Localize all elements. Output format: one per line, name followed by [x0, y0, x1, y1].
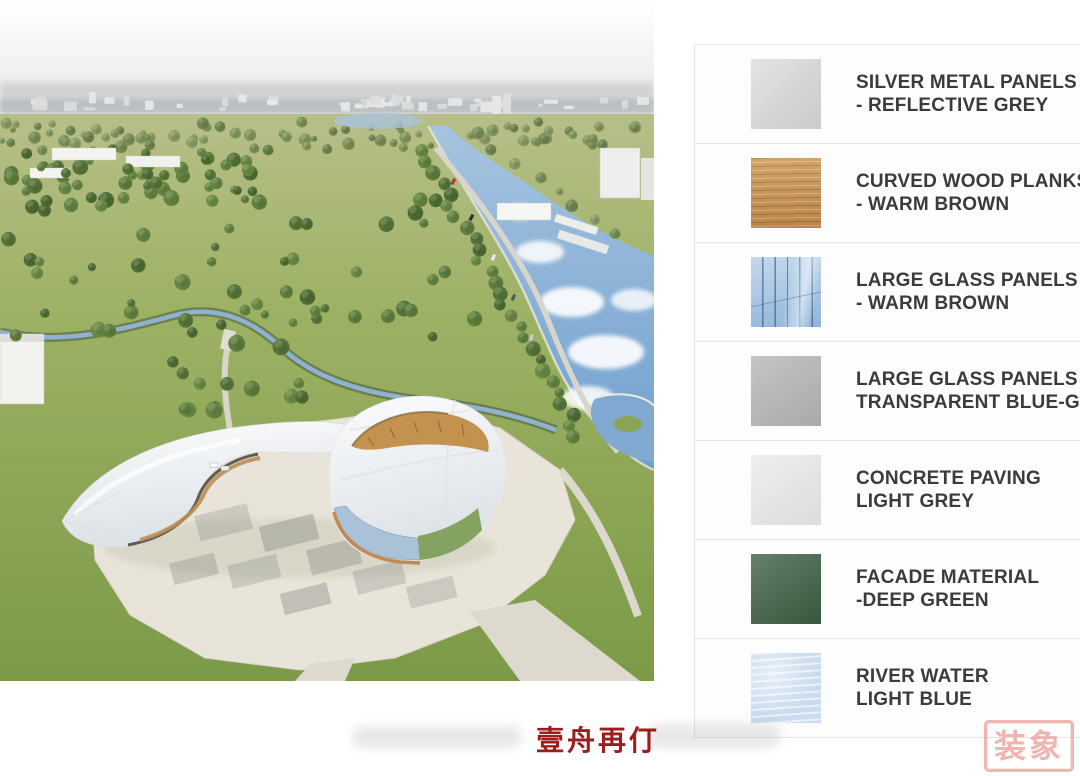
seal-watermark: 装象 — [984, 720, 1074, 772]
legend-label-line1: FACADE MATERIAL — [856, 566, 1039, 589]
sky — [0, 0, 654, 115]
legend-item-curved-wood-planks: CURVED WOOD PLANKS - WARM BROWN — [695, 144, 1080, 243]
legend-item-large-glass-panels-grey: LARGE GLASS PANELS - TRANSPARENT BLUE-GR… — [695, 342, 1080, 441]
blurred-watermark — [648, 724, 780, 748]
legend-label-line2: TRANSPARENT BLUE-GREY — [856, 391, 1080, 414]
swatch-concrete — [751, 455, 821, 525]
legend-label-line1: RIVER WATER — [856, 665, 989, 688]
legend-label: SILVER METAL PANELS - REFLECTIVE GREY — [856, 71, 1077, 117]
legend-label: FACADE MATERIAL -DEEP GREEN — [856, 566, 1039, 612]
legend-label-line1: CONCRETE PAVING — [856, 467, 1041, 490]
legend-label-line2: - WARM BROWN — [856, 193, 1080, 216]
swatch-deep-green — [751, 554, 821, 624]
swatch-glass-grey — [751, 356, 821, 426]
legend-label: RIVER WATER LIGHT BLUE — [856, 665, 989, 711]
legend-label-line2: -DEEP GREEN — [856, 589, 1039, 612]
legend-label-line2: LIGHT BLUE — [856, 688, 989, 711]
legend-label-line2: LIGHT GREY — [856, 490, 1041, 513]
rendering-image — [0, 0, 654, 681]
presentation-slide: SILVER METAL PANELS - REFLECTIVE GREY CU… — [0, 0, 1080, 776]
legend-label-line2: - REFLECTIVE GREY — [856, 94, 1077, 117]
legend-label: LARGE GLASS PANELS - WARM BROWN — [856, 269, 1078, 315]
legend-label-line2: - WARM BROWN — [856, 292, 1078, 315]
legend-label-line1: CURVED WOOD PLANKS — [856, 170, 1080, 193]
legend-label-line1: LARGE GLASS PANELS — [856, 269, 1078, 292]
legend-item-silver-metal-panels: SILVER METAL PANELS - REFLECTIVE GREY — [695, 45, 1080, 144]
swatch-glass-blue — [751, 257, 821, 327]
swatch-wood — [751, 158, 821, 228]
legend-label-line1: SILVER METAL PANELS — [856, 71, 1077, 94]
seal-characters: 装象 — [994, 730, 1064, 762]
distant-pond — [334, 113, 422, 129]
blurred-watermark — [352, 726, 522, 748]
material-legend: SILVER METAL PANELS - REFLECTIVE GREY CU… — [694, 44, 1080, 738]
legend-label: LARGE GLASS PANELS - TRANSPARENT BLUE-GR… — [856, 368, 1080, 414]
legend-item-facade-material-green: FACADE MATERIAL -DEEP GREEN — [695, 540, 1080, 639]
swatch-silver-metal — [751, 59, 821, 129]
legend-label-line1: LARGE GLASS PANELS - — [856, 368, 1080, 391]
swatch-river-water — [751, 653, 821, 723]
legend-item-large-glass-panels-blue: LARGE GLASS PANELS - WARM BROWN — [695, 243, 1080, 342]
legend-label: CURVED WOOD PLANKS - WARM BROWN — [856, 170, 1080, 216]
caption-text: 壹舟再仃 — [536, 719, 660, 759]
legend-item-concrete-paving: CONCRETE PAVING LIGHT GREY — [695, 441, 1080, 540]
legend-label: CONCRETE PAVING LIGHT GREY — [856, 467, 1041, 513]
